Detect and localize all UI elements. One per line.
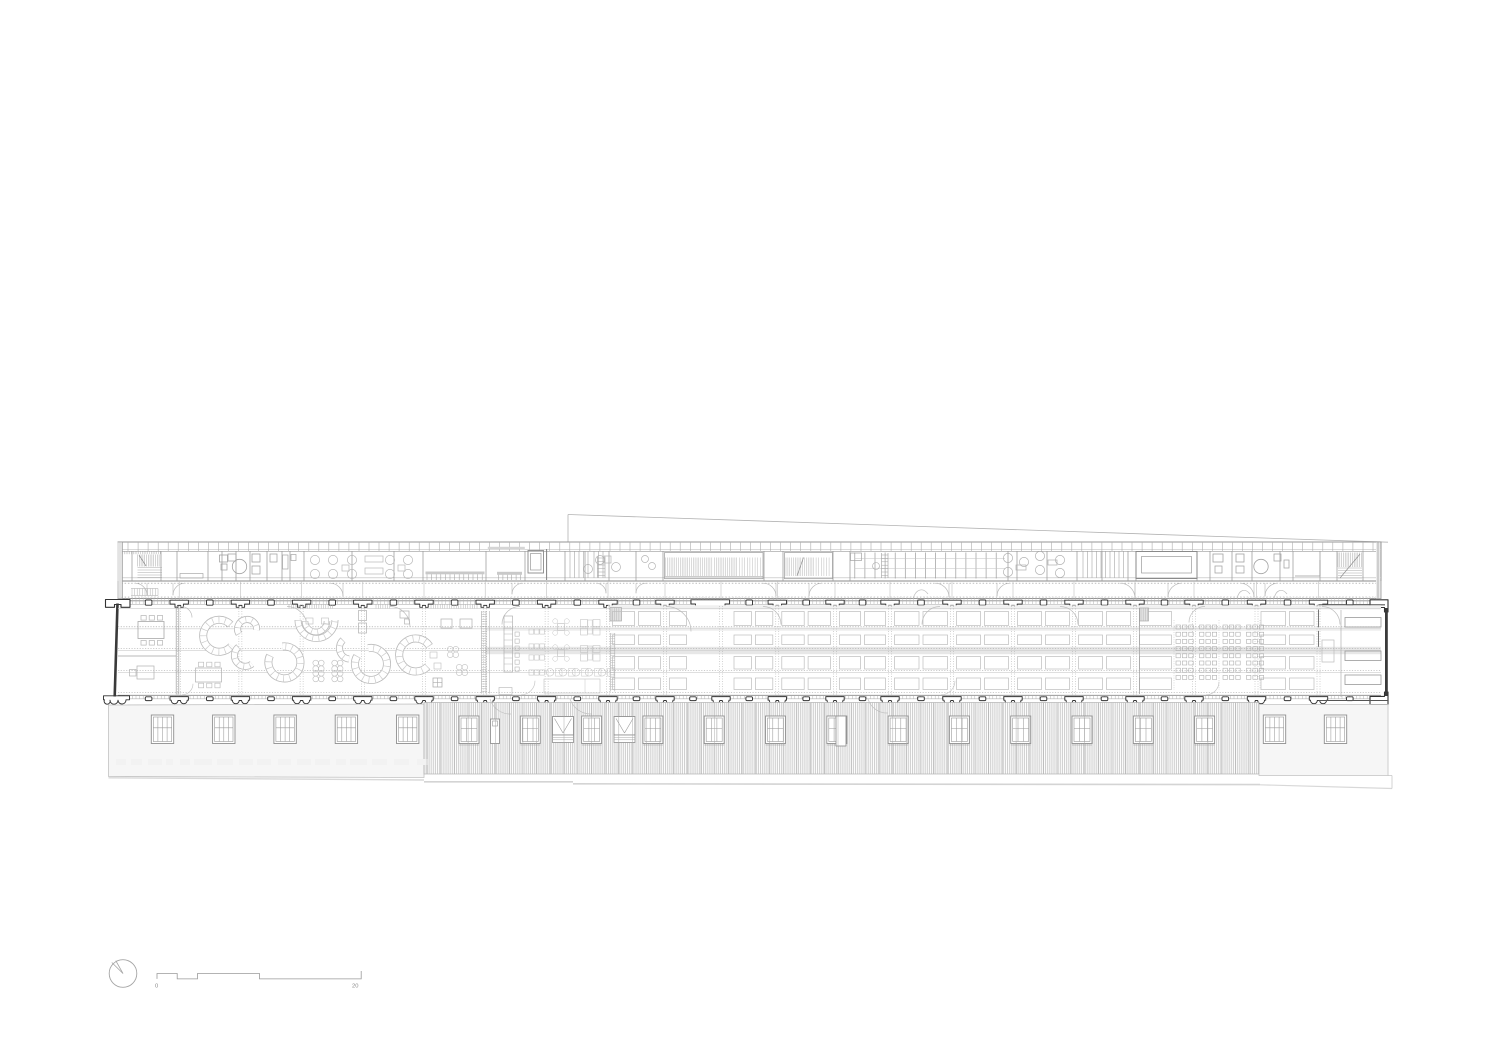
svg-text:0: 0 bbox=[155, 984, 158, 990]
svg-text:20: 20 bbox=[352, 984, 358, 990]
